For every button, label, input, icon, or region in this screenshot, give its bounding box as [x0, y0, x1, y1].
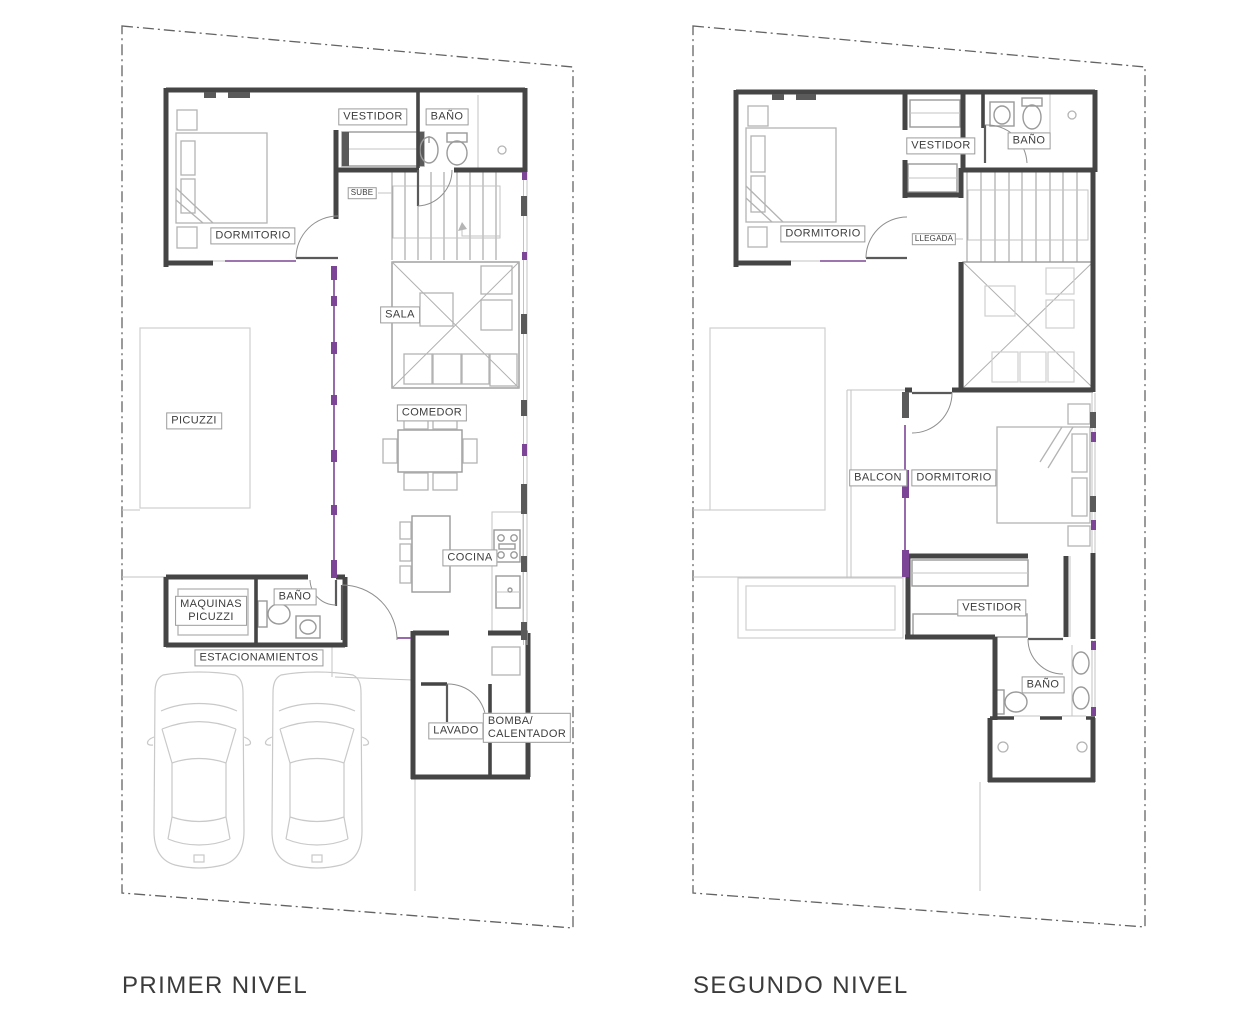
room-label-bomba-calentador: BOMBA/ CALENTADOR	[483, 713, 571, 743]
stairs-segundo	[967, 172, 1088, 262]
toilet-icon	[447, 133, 467, 165]
room-label-dormitorio-n2: DORMITORIO	[780, 225, 865, 242]
room-label-comedor: COMEDOR	[397, 404, 467, 421]
room-label-lavado: LAVADO	[428, 722, 483, 739]
closet-icon-master	[912, 556, 1070, 637]
stair-label-sube: SUBE	[348, 187, 377, 199]
toilet-icon	[1022, 98, 1042, 129]
room-label-dormitorio-n1: DORMITORIO	[210, 227, 295, 244]
room-label-picuzzi: PICUZZI	[166, 412, 222, 429]
room-label-vestidor-master: VESTIDOR	[957, 599, 1026, 616]
boiler-equipment	[492, 647, 520, 675]
room-label-dormitorio-master: DORMITORIO	[911, 469, 996, 486]
toilet-icon-master	[995, 690, 1027, 714]
stair-label-llegada: LLEGADA	[912, 233, 956, 245]
closet-icon	[342, 132, 424, 166]
plan-primer-nivel	[122, 26, 573, 928]
level-title-segundo-nivel: SEGUNDO NIVEL	[693, 972, 909, 1000]
room-label-bano-n1: BAÑO	[426, 108, 469, 125]
parking-cars	[147, 672, 368, 868]
kitchen-counter-icon	[492, 512, 523, 632]
terrace-fixture	[1077, 742, 1087, 752]
room-label-bano-servicio: BAÑO	[274, 588, 317, 605]
terrace-fixture	[998, 742, 1008, 752]
ghost-outlines-segundo	[693, 328, 980, 891]
stair-direction-arrow	[458, 222, 467, 231]
room-label-balcon: BALCON	[849, 469, 907, 486]
shower-drain-icon	[1068, 111, 1076, 119]
room-label-cocina: COCINA	[442, 549, 497, 566]
room-label-sala: SALA	[380, 306, 420, 323]
bed-icon-master	[997, 404, 1090, 546]
sala-void-segundo	[963, 262, 1093, 388]
room-label-maquinas-picuzzi: MAQUINAS PICUZZI	[175, 596, 247, 626]
window-wall-east	[521, 172, 527, 645]
sala-void	[392, 262, 519, 388]
window-wall-east-segundo	[791, 261, 1096, 716]
room-label-vestidor-n1: VESTIDOR	[338, 108, 407, 125]
stairs-primer	[392, 172, 500, 260]
level-title-primer-nivel: PRIMER NIVEL	[122, 972, 308, 1000]
furniture-primer	[176, 95, 523, 675]
room-label-bano-master: BAÑO	[1022, 676, 1065, 693]
dining-table-icon	[383, 412, 477, 490]
car-icon	[265, 672, 368, 868]
sink-icon	[990, 102, 1014, 126]
furniture-segundo	[746, 92, 1090, 752]
room-label-estacionamientos: ESTACIONAMIENTOS	[194, 649, 323, 666]
double-sink-icon	[1072, 645, 1089, 716]
shower-drain-icon	[498, 146, 506, 154]
room-label-bano-n2: BAÑO	[1008, 132, 1051, 149]
floor-plan-drawing	[0, 0, 1248, 1026]
sofa-icons	[404, 266, 517, 386]
sink-icon-small-bath	[296, 616, 320, 638]
room-label-vestidor-n2: VESTIDOR	[906, 137, 975, 154]
car-icon	[147, 672, 250, 868]
